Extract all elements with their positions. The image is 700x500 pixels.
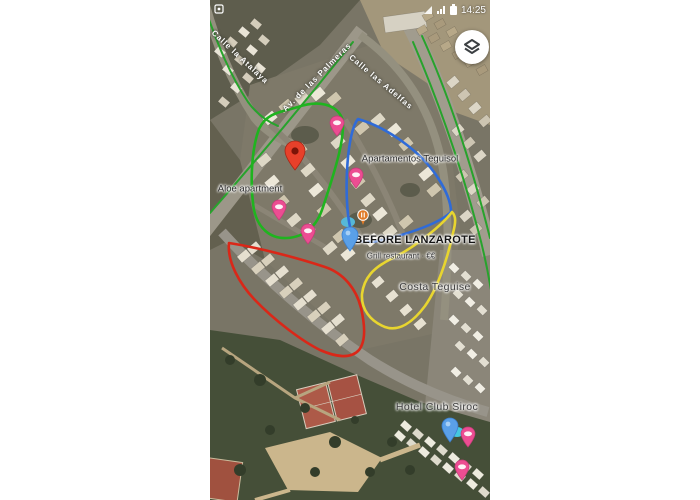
status-time: 14:25 [461,5,486,16]
signal-icon [423,5,433,15]
restaurant-poi-pin[interactable] [357,209,370,226]
status-bar: 14:25 [210,0,490,20]
screenshot-canvas: Calle la AtalayaAv. de las PalmerasCalle… [0,0,700,500]
traffic-line [413,42,490,290]
pink-pin[interactable] [271,199,287,221]
battery-icon [449,4,458,16]
blue-pin[interactable] [341,226,359,252]
layers-button[interactable] [455,30,489,64]
pink-pin[interactable] [454,459,470,481]
blue-pin[interactable] [441,417,459,443]
traffic-line [422,36,490,238]
pink-pin[interactable] [460,426,476,448]
phone-screenshot: Calle la AtalayaAv. de las PalmerasCalle… [210,0,490,500]
red-pin[interactable] [284,140,306,172]
pink-pin[interactable] [348,167,364,189]
pink-pin[interactable] [329,115,345,137]
notification-icon [214,4,224,17]
yellow-route [362,212,455,328]
pink-pin[interactable] [300,223,316,245]
red-route [229,243,364,356]
layers-icon [463,38,481,56]
traffic-line [210,14,278,126]
signal-icon [436,5,446,15]
